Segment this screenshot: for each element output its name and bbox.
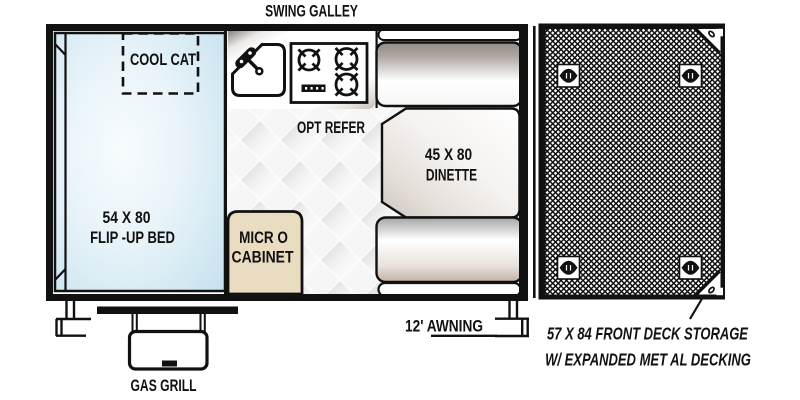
svg-text:57 X 84 FRONT DECK STORAGE: 57 X 84 FRONT DECK STORAGE [547, 324, 749, 344]
svg-text:54 X 80: 54 X 80 [103, 209, 151, 228]
svg-text:W/ EXPANDED MET AL DECKING: W/ EXPANDED MET AL DECKING [545, 350, 751, 370]
svg-text:DINETTE: DINETTE [426, 166, 477, 185]
svg-text:45 X 80: 45 X 80 [425, 146, 472, 165]
svg-text:FLIP -UP BED: FLIP -UP BED [90, 229, 175, 248]
svg-text:CABINET: CABINET [232, 248, 295, 267]
svg-text:MICR O: MICR O [239, 229, 288, 248]
svg-text:GAS GRILL: GAS GRILL [131, 377, 197, 396]
svg-text:OPT REFER: OPT REFER [297, 119, 365, 138]
svg-text:COOL CAT: COOL CAT [130, 51, 196, 70]
svg-text:12' AWNING: 12' AWNING [405, 317, 483, 336]
svg-text:SWING GALLEY: SWING GALLEY [265, 2, 358, 21]
